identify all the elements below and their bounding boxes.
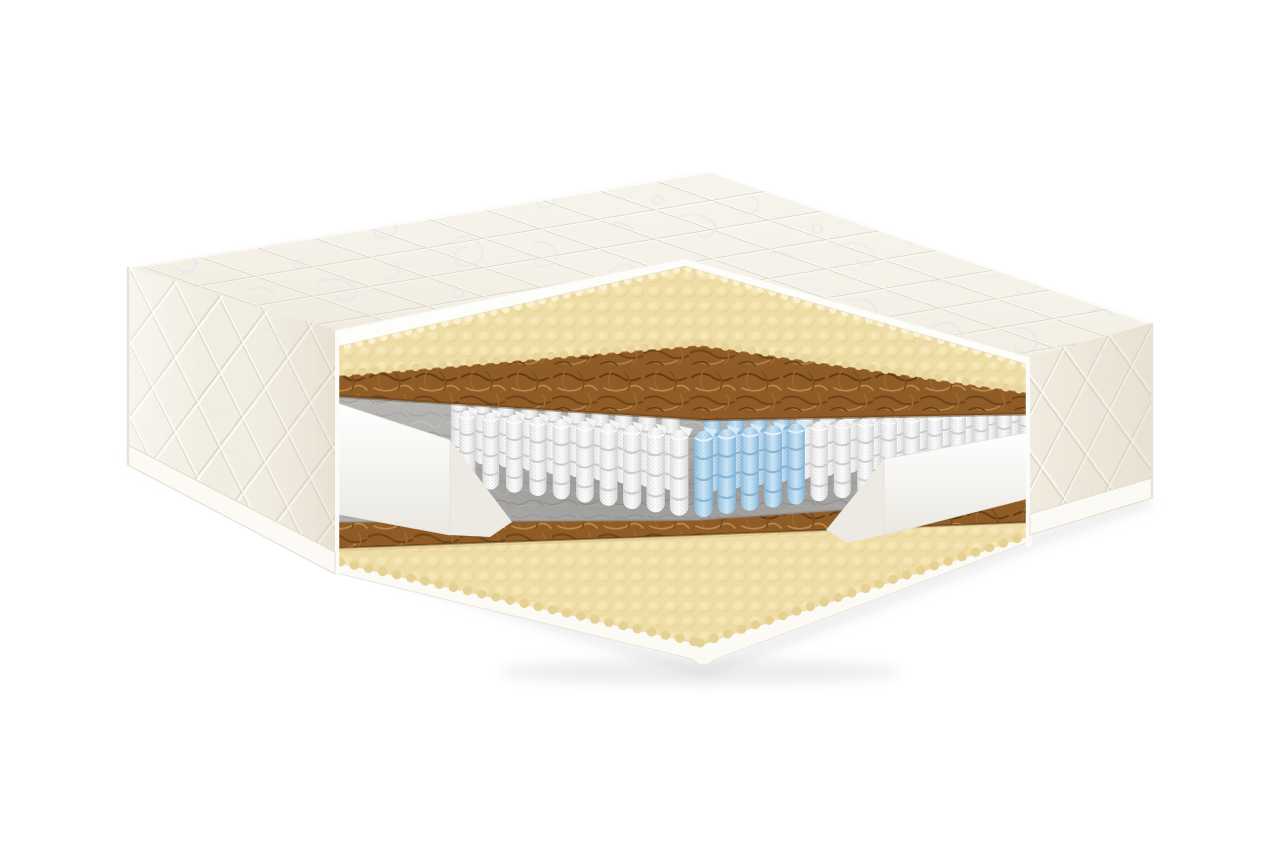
page [0,0,1280,854]
quilted-side-border-right [1030,323,1152,535]
mattress-cutaway-image [0,0,1280,854]
mattress-illustration [0,0,1280,854]
